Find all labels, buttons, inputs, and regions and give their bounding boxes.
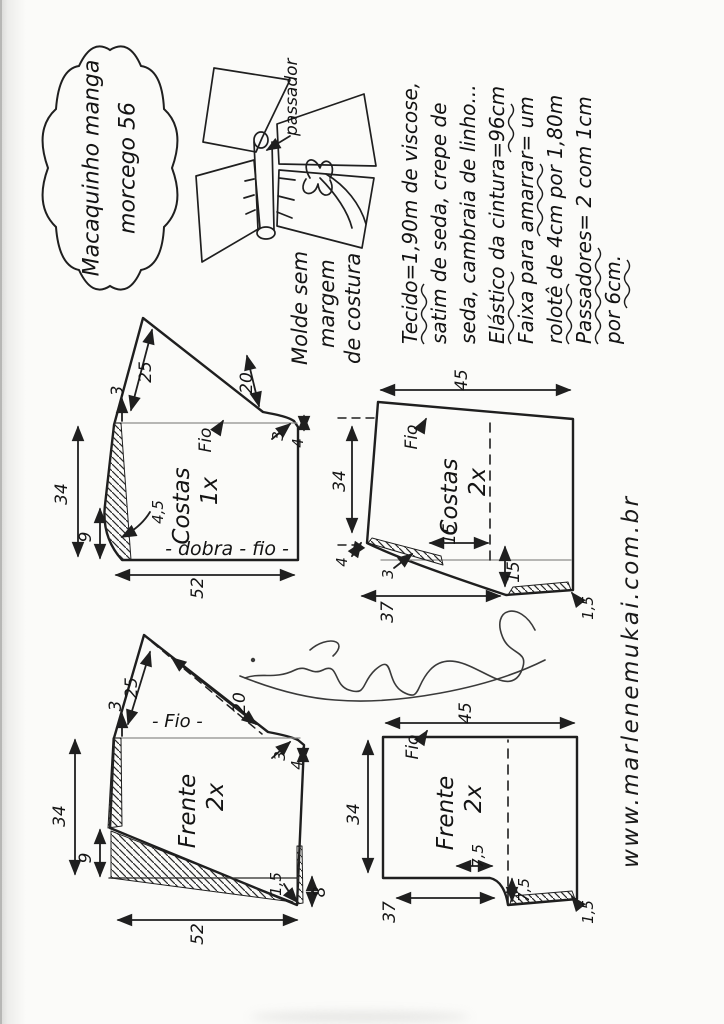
- materials-notes: Tecido=1,90m de viscose, satim de seda, …: [396, 82, 628, 344]
- costas-shorts-measure-hem-rise: 1,5: [579, 596, 597, 620]
- frente-top-measure-dip: 8: [310, 887, 330, 898]
- sleeve-left-wing: [196, 160, 260, 262]
- costas-shorts-measure-side: 34: [330, 470, 350, 492]
- scan-smudge: [250, 1012, 470, 1022]
- frente-shorts-measure-crotch-w: 7,5: [469, 844, 487, 868]
- frente-shorts-qty: 2x: [461, 785, 487, 813]
- frente-top-measure-shoulder: 25: [122, 677, 142, 699]
- costas-top-measure-cuff: 20: [237, 372, 257, 394]
- waistband-bottom: [272, 142, 274, 230]
- costas-shorts-measure-step: 4: [333, 557, 351, 567]
- frente-shorts-measure-hem: 37: [380, 901, 400, 923]
- bow-tail-2: [326, 174, 366, 224]
- frente-shorts-grain-label: Fio: [403, 735, 423, 760]
- materials-line: Faixa para amarrar= um: [512, 82, 541, 344]
- piece-frente-shorts-linework: [368, 723, 580, 907]
- costas-top-name: Costas: [169, 467, 195, 544]
- frente-top-measure-underarm-h: 4: [288, 760, 306, 770]
- scanned-sewing-pattern-page: Macaquinho manga morcego 56 passador Mol…: [0, 0, 724, 1024]
- materials-line: satim de seda, crepe de: [425, 82, 454, 344]
- frente-top-measure-length: 52: [188, 923, 208, 945]
- costas-top-measure-width: 34: [52, 483, 72, 505]
- costas-top-measure-curve: 4,5: [149, 500, 167, 524]
- costas-top-measure-underarm-h: 4: [289, 438, 307, 448]
- costas-top-qty: 1x: [197, 477, 223, 505]
- frente-top-measure-underarm-w: 3: [271, 751, 289, 761]
- costas-top-measure-length: 52: [188, 577, 208, 599]
- costas-top-measure-underarm-w: 3: [269, 431, 287, 441]
- materials-line: Tecido=1,90m de viscose,: [396, 82, 425, 344]
- costas-top-measure-ext: 3: [108, 386, 128, 397]
- costas-shorts-measure-crotch-h: 15: [504, 561, 524, 583]
- costas-shorts-grain-label: Fio: [402, 425, 422, 450]
- website-url: www.marlenemukai.com.br: [618, 494, 644, 868]
- costas-top-measure-shoulder: 25: [136, 361, 156, 383]
- costas-top-grain-label: Fio: [196, 428, 216, 453]
- materials-line: Passadores= 2 com 1cm: [570, 82, 599, 344]
- author-signature: [215, 590, 555, 720]
- frente-top-name: Frente: [175, 774, 201, 849]
- bow-tail-1: [320, 178, 352, 228]
- note-line1: Molde sem: [288, 251, 312, 365]
- waistband-top: [254, 142, 258, 230]
- materials-line: Elástico da cintura=96cm: [483, 82, 512, 344]
- materials-line: seda, cambraia de linho...: [454, 82, 483, 344]
- materials-line: rolotê de 4cm por 1,80m: [541, 82, 570, 344]
- frente-shorts-measure-hem-rise: 1,5: [579, 900, 597, 924]
- pattern-landscape-content: Macaquinho manga morcego 56 passador Mol…: [0, 0, 724, 1024]
- costas-shorts-name: Costas: [437, 458, 463, 535]
- frente-top-measure-width: 34: [50, 805, 70, 827]
- frente-shorts-measure-side: 34: [344, 803, 364, 825]
- pattern-title-line1: Macaquinho manga: [80, 60, 105, 277]
- frente-top-qty: 2x: [203, 783, 229, 811]
- frente-shorts-name: Frente: [433, 776, 459, 851]
- frente-shorts-measure-crotch-h: 7,5: [515, 878, 533, 902]
- materials-line: por 6cm.: [599, 82, 628, 344]
- gather-strokes-bottom: [277, 178, 295, 218]
- pattern-title-line2: morcego 56: [116, 102, 141, 234]
- waistband-end-knob: [257, 227, 275, 239]
- note-line2: margem: [315, 259, 339, 348]
- note-line3: de costura: [341, 253, 365, 364]
- frente-top-measure-ext: 3: [106, 701, 126, 712]
- costas-shorts-measure-waist: 45: [452, 369, 472, 391]
- costas-shorts-measure-drop: 3: [379, 569, 397, 579]
- frente-top-measure-corner: 1,5: [267, 872, 285, 896]
- gather-strokes-top: [244, 179, 255, 214]
- passador-label: passador: [282, 58, 302, 136]
- frente-top-measure-hem-rise: 9: [76, 853, 96, 864]
- costas-shorts-qty: 2x: [465, 468, 491, 496]
- costas-top-fold-label: - dobra - fio -: [152, 538, 302, 560]
- costas-top-measure-hem-rise: 9: [76, 532, 96, 543]
- title-cloud-outline: [43, 46, 178, 289]
- frente-top-grain-label: - Fio -: [152, 711, 203, 732]
